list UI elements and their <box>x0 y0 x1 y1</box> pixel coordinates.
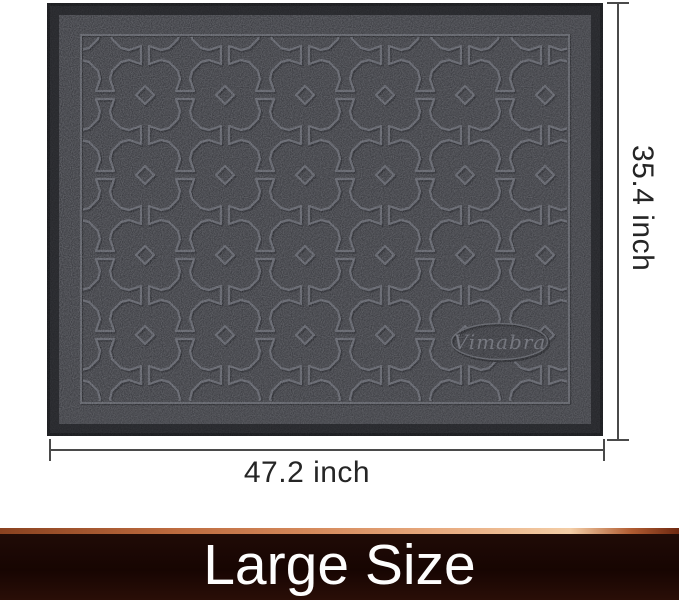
height-dimension-cap-bottom <box>607 439 629 441</box>
door-mat-graphic: Vimabra <box>47 3 603 436</box>
height-dimension-label: 35.4 inch <box>625 145 659 271</box>
product-image: Vimabra 47.2 inch 35.4 inch Large Size <box>0 0 679 600</box>
banner-body: Large Size <box>0 534 679 600</box>
width-dimension-line <box>49 449 605 451</box>
height-dimension-line <box>617 2 619 441</box>
height-dimension-cap-top <box>607 2 629 4</box>
door-mat: Vimabra <box>47 3 603 436</box>
width-dimension-cap-right <box>603 439 605 461</box>
width-dimension-label: 47.2 inch <box>29 456 585 490</box>
mat-border-noise <box>47 3 603 436</box>
banner-size-label: Large Size <box>203 535 476 595</box>
size-banner: Large Size <box>0 528 679 600</box>
